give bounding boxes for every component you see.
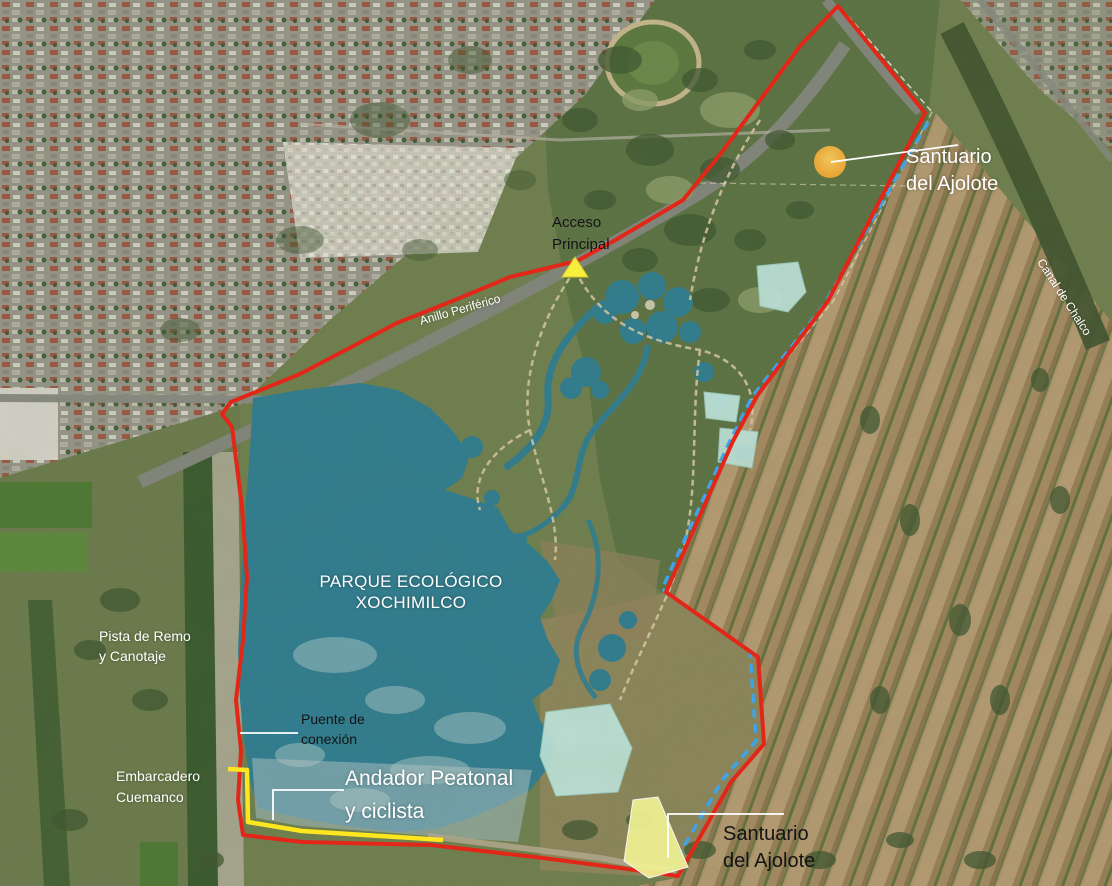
park-title: PARQUE ECOLÓGICO XOCHIMILCO (306, 571, 516, 614)
label-connection-bridge: Puente de conexión (301, 709, 365, 750)
label-line: y ciclista (345, 796, 513, 829)
label-line: Pista de Remo (99, 626, 191, 646)
label-line: y Canotaje (99, 646, 191, 666)
label-line: conexión (301, 729, 365, 749)
label-line: del Ajolote (906, 171, 998, 198)
label-line: del Ajolote (723, 848, 815, 875)
label-line: Puente de (301, 709, 365, 729)
label-pier-cuemanco: Embarcadero Cuemanco (116, 766, 200, 808)
label-line: Santuario (723, 821, 815, 848)
label-sanctuary-south: Santuario del Ajolote (723, 821, 815, 875)
map-canvas: Santuario del Ajolote Canal de Chalco Ac… (0, 0, 1112, 886)
label-main-access: Acceso Principal (552, 212, 610, 256)
label-line: PARQUE ECOLÓGICO (306, 571, 516, 592)
label-line: XOCHIMILCO (306, 592, 516, 613)
label-line: Embarcadero (116, 766, 200, 787)
label-line: Acceso (552, 212, 610, 234)
label-line: Andador Peatonal (345, 763, 513, 796)
label-line: Santuario (906, 144, 998, 171)
label-line: Cuemanco (116, 787, 200, 808)
satellite-base (0, 0, 1112, 886)
satellite-map-image (0, 0, 1112, 886)
sanctuary-marker-icon (814, 146, 846, 178)
label-rowing-course: Pista de Remo y Canotaje (99, 626, 191, 667)
label-line: Principal (552, 234, 610, 256)
label-sanctuary-north: Santuario del Ajolote (906, 144, 998, 198)
label-pedestrian-walkway: Andador Peatonal y ciclista (345, 763, 513, 828)
